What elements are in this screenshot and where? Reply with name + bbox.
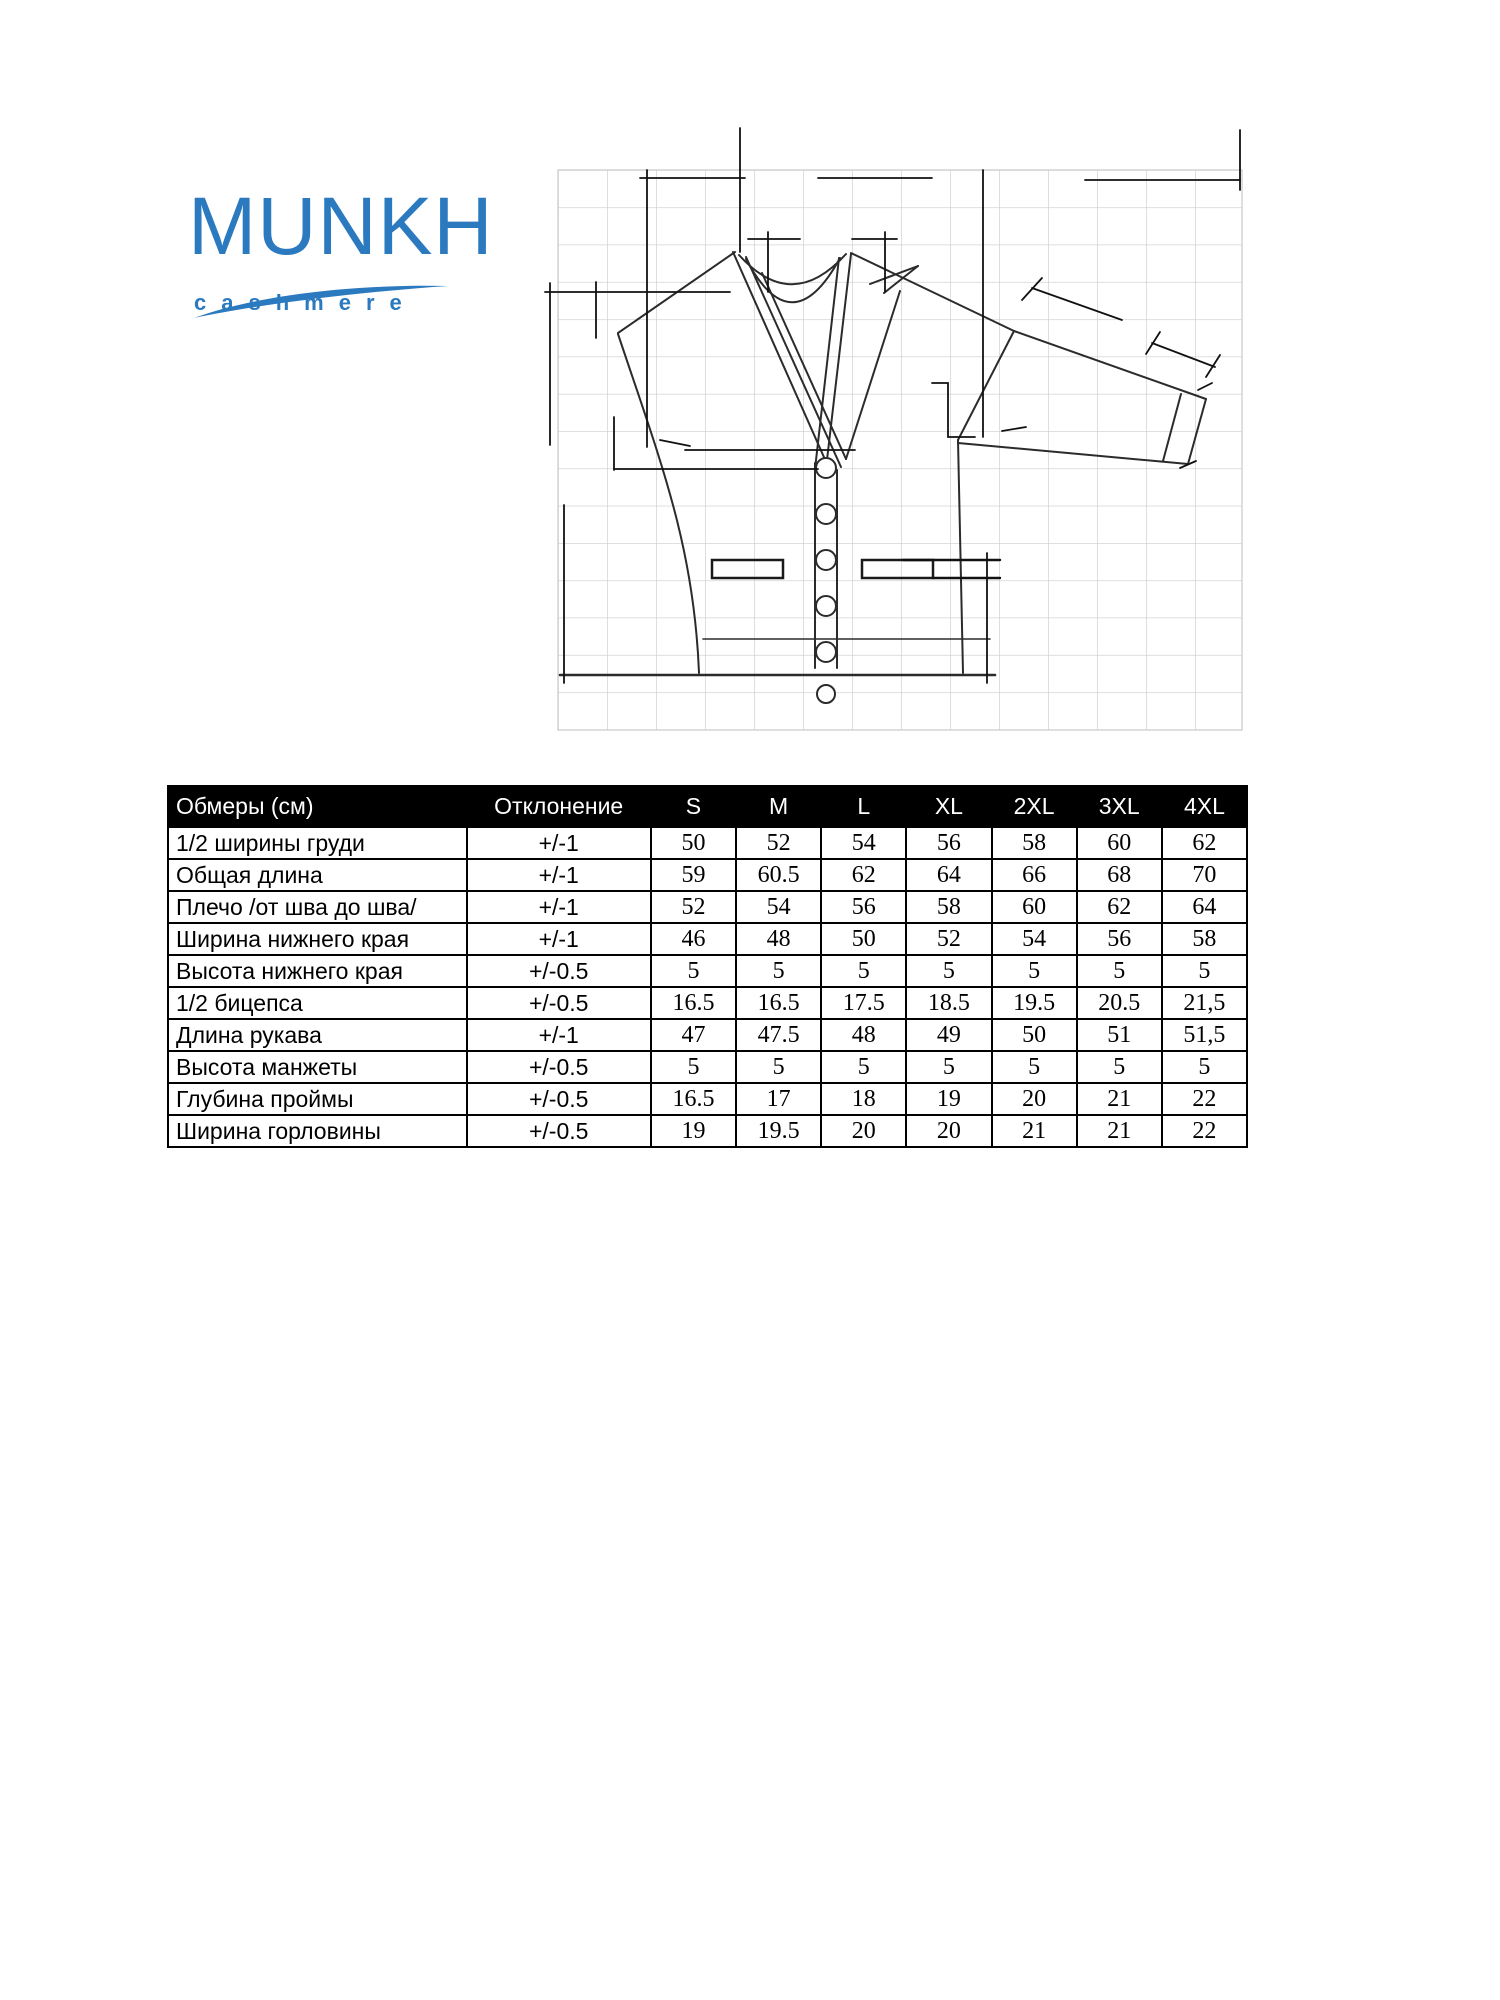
size-value: 16.5	[651, 1083, 736, 1115]
size-value: 51	[1077, 1019, 1162, 1051]
size-value: 50	[992, 1019, 1077, 1051]
size-value: 22	[1162, 1115, 1247, 1147]
size-value: 5	[821, 1051, 906, 1083]
size-value: 48	[821, 1019, 906, 1051]
drawing-grid	[558, 170, 1242, 730]
table-row: Высота манжеты +/-0.5 5 5 5 5 5 5 5	[168, 1051, 1247, 1083]
size-value: 54	[992, 923, 1077, 955]
size-value: 21	[1077, 1115, 1162, 1147]
measure-label: Длина рукава	[168, 1019, 467, 1051]
size-value: 19	[651, 1115, 736, 1147]
col-header-size-4xl: 4XL	[1162, 786, 1247, 827]
measure-label: 1/2 ширины груди	[168, 827, 467, 859]
size-value: 56	[906, 827, 991, 859]
table-row: 1/2 бицепса +/-0.5 16.5 16.5 17.5 18.5 1…	[168, 987, 1247, 1019]
size-value: 51,5	[1162, 1019, 1247, 1051]
size-value: 16.5	[651, 987, 736, 1019]
size-value: 56	[1077, 923, 1162, 955]
size-value: 56	[821, 891, 906, 923]
size-value: 19	[906, 1083, 991, 1115]
size-value: 62	[1162, 827, 1247, 859]
size-value: 5	[1162, 1051, 1247, 1083]
size-value: 18.5	[906, 987, 991, 1019]
table-row: Ширина нижнего края +/-1 46 48 50 52 54 …	[168, 923, 1247, 955]
table-row: Плечо /от шва до шва/ +/-1 52 54 56 58 6…	[168, 891, 1247, 923]
measure-label: Высота нижнего края	[168, 955, 467, 987]
table-row: Ширина горловины +/-0.5 19 19.5 20 20 21…	[168, 1115, 1247, 1147]
size-value: 5	[651, 1051, 736, 1083]
table-row: 1/2 ширины груди +/-1 50 52 54 56 58 60 …	[168, 827, 1247, 859]
col-header-size-xl: XL	[906, 786, 991, 827]
deviation-value: +/-0.5	[467, 987, 651, 1019]
size-value: 5	[906, 955, 991, 987]
measure-label: Плечо /от шва до шва/	[168, 891, 467, 923]
size-value: 22	[1162, 1083, 1247, 1115]
size-value: 21	[1077, 1083, 1162, 1115]
table-row: Высота нижнего края +/-0.5 5 5 5 5 5 5 5	[168, 955, 1247, 987]
measure-label: Общая длина	[168, 859, 467, 891]
size-value: 58	[1162, 923, 1247, 955]
col-header-size-m: M	[736, 786, 821, 827]
size-value: 20	[992, 1083, 1077, 1115]
size-value: 48	[736, 923, 821, 955]
size-value: 64	[1162, 891, 1247, 923]
size-value: 54	[736, 891, 821, 923]
size-value: 17.5	[821, 987, 906, 1019]
size-value: 5	[1077, 955, 1162, 987]
size-value: 16.5	[736, 987, 821, 1019]
size-value: 60.5	[736, 859, 821, 891]
col-header-size-3xl: 3XL	[1077, 786, 1162, 827]
deviation-value: +/-1	[467, 859, 651, 891]
size-value: 49	[906, 1019, 991, 1051]
size-value: 58	[906, 891, 991, 923]
deviation-value: +/-1	[467, 1019, 651, 1051]
size-value: 20	[821, 1115, 906, 1147]
size-value: 5	[992, 955, 1077, 987]
table-row: Общая длина +/-1 59 60.5 62 64 66 68 70	[168, 859, 1247, 891]
deviation-value: +/-0.5	[467, 1115, 651, 1147]
size-value: 20	[906, 1115, 991, 1147]
measure-label: 1/2 бицепса	[168, 987, 467, 1019]
size-value: 70	[1162, 859, 1247, 891]
size-value: 59	[651, 859, 736, 891]
measure-label: Ширина горловины	[168, 1115, 467, 1147]
size-value: 18	[821, 1083, 906, 1115]
col-header-measure: Обмеры (см)	[168, 786, 467, 827]
size-value: 54	[821, 827, 906, 859]
size-value: 5	[821, 955, 906, 987]
measure-label: Глубина проймы	[168, 1083, 467, 1115]
size-value: 21	[992, 1115, 1077, 1147]
deviation-value: +/-0.5	[467, 1051, 651, 1083]
size-value: 5	[1162, 955, 1247, 987]
deviation-value: +/-0.5	[467, 955, 651, 987]
size-value: 46	[651, 923, 736, 955]
deviation-value: +/-1	[467, 923, 651, 955]
size-chart: Обмеры (см) Отклонение S M L XL 2XL 3XL …	[167, 785, 1248, 1148]
size-table: Обмеры (см) Отклонение S M L XL 2XL 3XL …	[167, 785, 1248, 1148]
col-header-deviation: Отклонение	[467, 786, 651, 827]
size-value: 52	[651, 891, 736, 923]
measure-label: Высота манжеты	[168, 1051, 467, 1083]
table-row: Глубина проймы +/-0.5 16.5 17 18 19 20 2…	[168, 1083, 1247, 1115]
table-header-row: Обмеры (см) Отклонение S M L XL 2XL 3XL …	[168, 786, 1247, 827]
size-value: 68	[1077, 859, 1162, 891]
size-value: 20.5	[1077, 987, 1162, 1019]
size-value: 60	[1077, 827, 1162, 859]
table-row: Длина рукава +/-1 47 47.5 48 49 50 51 51…	[168, 1019, 1247, 1051]
col-header-size-s: S	[651, 786, 736, 827]
size-value: 5	[992, 1051, 1077, 1083]
size-value: 62	[821, 859, 906, 891]
size-value: 52	[736, 827, 821, 859]
size-value: 19.5	[736, 1115, 821, 1147]
size-value: 60	[992, 891, 1077, 923]
size-value: 17	[736, 1083, 821, 1115]
deviation-value: +/-0.5	[467, 1083, 651, 1115]
size-value: 58	[992, 827, 1077, 859]
size-value: 5	[651, 955, 736, 987]
deviation-value: +/-1	[467, 827, 651, 859]
size-value: 50	[821, 923, 906, 955]
size-value: 21,5	[1162, 987, 1247, 1019]
page: { "logo": { "brand": "MUNKH", "subbrand"…	[0, 0, 1500, 2000]
size-value: 64	[906, 859, 991, 891]
deviation-value: +/-1	[467, 891, 651, 923]
size-value: 5	[736, 955, 821, 987]
size-value: 5	[736, 1051, 821, 1083]
size-value: 52	[906, 923, 991, 955]
cardigan-technical-drawing	[0, 0, 1300, 760]
size-value: 50	[651, 827, 736, 859]
col-header-size-2xl: 2XL	[992, 786, 1077, 827]
col-header-size-l: L	[821, 786, 906, 827]
size-value: 47.5	[736, 1019, 821, 1051]
size-value: 66	[992, 859, 1077, 891]
size-value: 5	[1077, 1051, 1162, 1083]
measure-label: Ширина нижнего края	[168, 923, 467, 955]
size-value: 5	[906, 1051, 991, 1083]
size-value: 47	[651, 1019, 736, 1051]
size-value: 62	[1077, 891, 1162, 923]
size-value: 19.5	[992, 987, 1077, 1019]
